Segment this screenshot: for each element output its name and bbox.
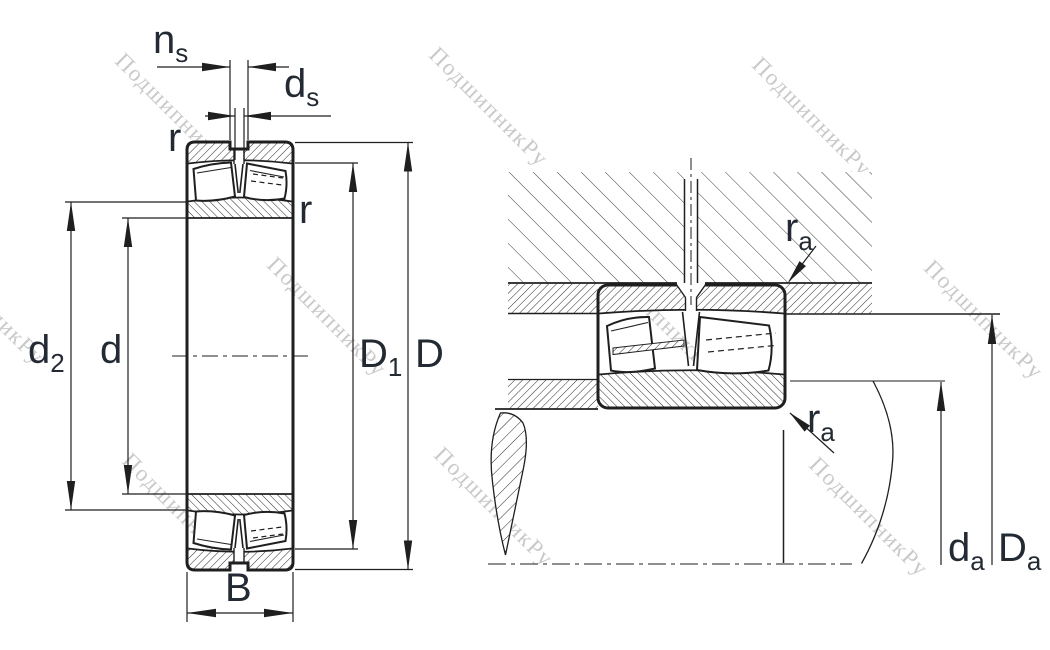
dim-label-ra-shaft-main: r <box>807 397 820 441</box>
dim-label-Da-sub: a <box>1027 546 1041 576</box>
dim-label-ra-housing-main: r <box>785 206 798 250</box>
spherical-rollers-bottom <box>194 511 287 549</box>
bearing-dimension-drawing: ПодшипникРу ПодшипникРу ПодшипникРу Подш… <box>0 0 1050 650</box>
dim-label-ra-housing-sub: a <box>798 226 812 256</box>
shaft-abutment-left <box>508 380 598 410</box>
dim-label-r-inner: r <box>299 190 312 236</box>
right-view-mounting-section <box>488 158 1000 565</box>
dim-label-da: da <box>948 528 985 574</box>
spherical-rollers-mounted <box>607 317 772 373</box>
dim-label-B: B <box>225 568 252 614</box>
dim-label-d2-main: d <box>28 328 50 372</box>
dim-label-ns-main: n <box>153 18 175 62</box>
spherical-rollers-top <box>194 163 287 201</box>
dim-label-Da: Da <box>998 528 1041 574</box>
dim-label-d-main: d <box>100 328 122 372</box>
dim-label-d2-sub: 2 <box>50 348 64 378</box>
shaft-shoulder-profile <box>862 381 893 564</box>
dim-label-ns: ns <box>153 20 188 66</box>
dim-label-D1: D1 <box>359 334 402 380</box>
dim-label-d2: d2 <box>28 330 65 376</box>
dim-label-D-main: D <box>415 332 444 376</box>
inner-ring-hatch <box>599 370 784 406</box>
dim-label-da-sub: a <box>970 546 984 576</box>
dim-label-ns-sub: s <box>175 38 188 68</box>
dim-label-ra-housing: ra <box>785 208 813 254</box>
dim-label-da-main: d <box>948 526 970 570</box>
shaft-fillet-section <box>491 413 526 555</box>
dim-label-r-inner-main: r <box>299 188 312 232</box>
dim-label-ra-shaft: ra <box>807 399 835 445</box>
housing-shoulder-left <box>508 284 598 314</box>
dim-label-D: D <box>415 334 444 380</box>
dim-label-B-main: B <box>225 566 252 610</box>
housing-shoulder-right <box>785 284 872 314</box>
dim-label-ds-sub: s <box>306 82 319 112</box>
dim-label-D1-main: D <box>359 332 388 376</box>
technical-drawing-canvas <box>0 0 1050 650</box>
dim-label-d: d <box>100 330 122 376</box>
dim-label-ds: ds <box>284 64 319 110</box>
dim-label-ds-main: d <box>284 62 306 106</box>
dim-label-D1-sub: 1 <box>388 352 402 382</box>
dim-label-Da-main: D <box>998 526 1027 570</box>
dim-label-r-outer: r <box>168 118 181 164</box>
dim-label-r-outer-main: r <box>168 116 181 160</box>
dim-label-ra-shaft-sub: a <box>820 417 834 447</box>
